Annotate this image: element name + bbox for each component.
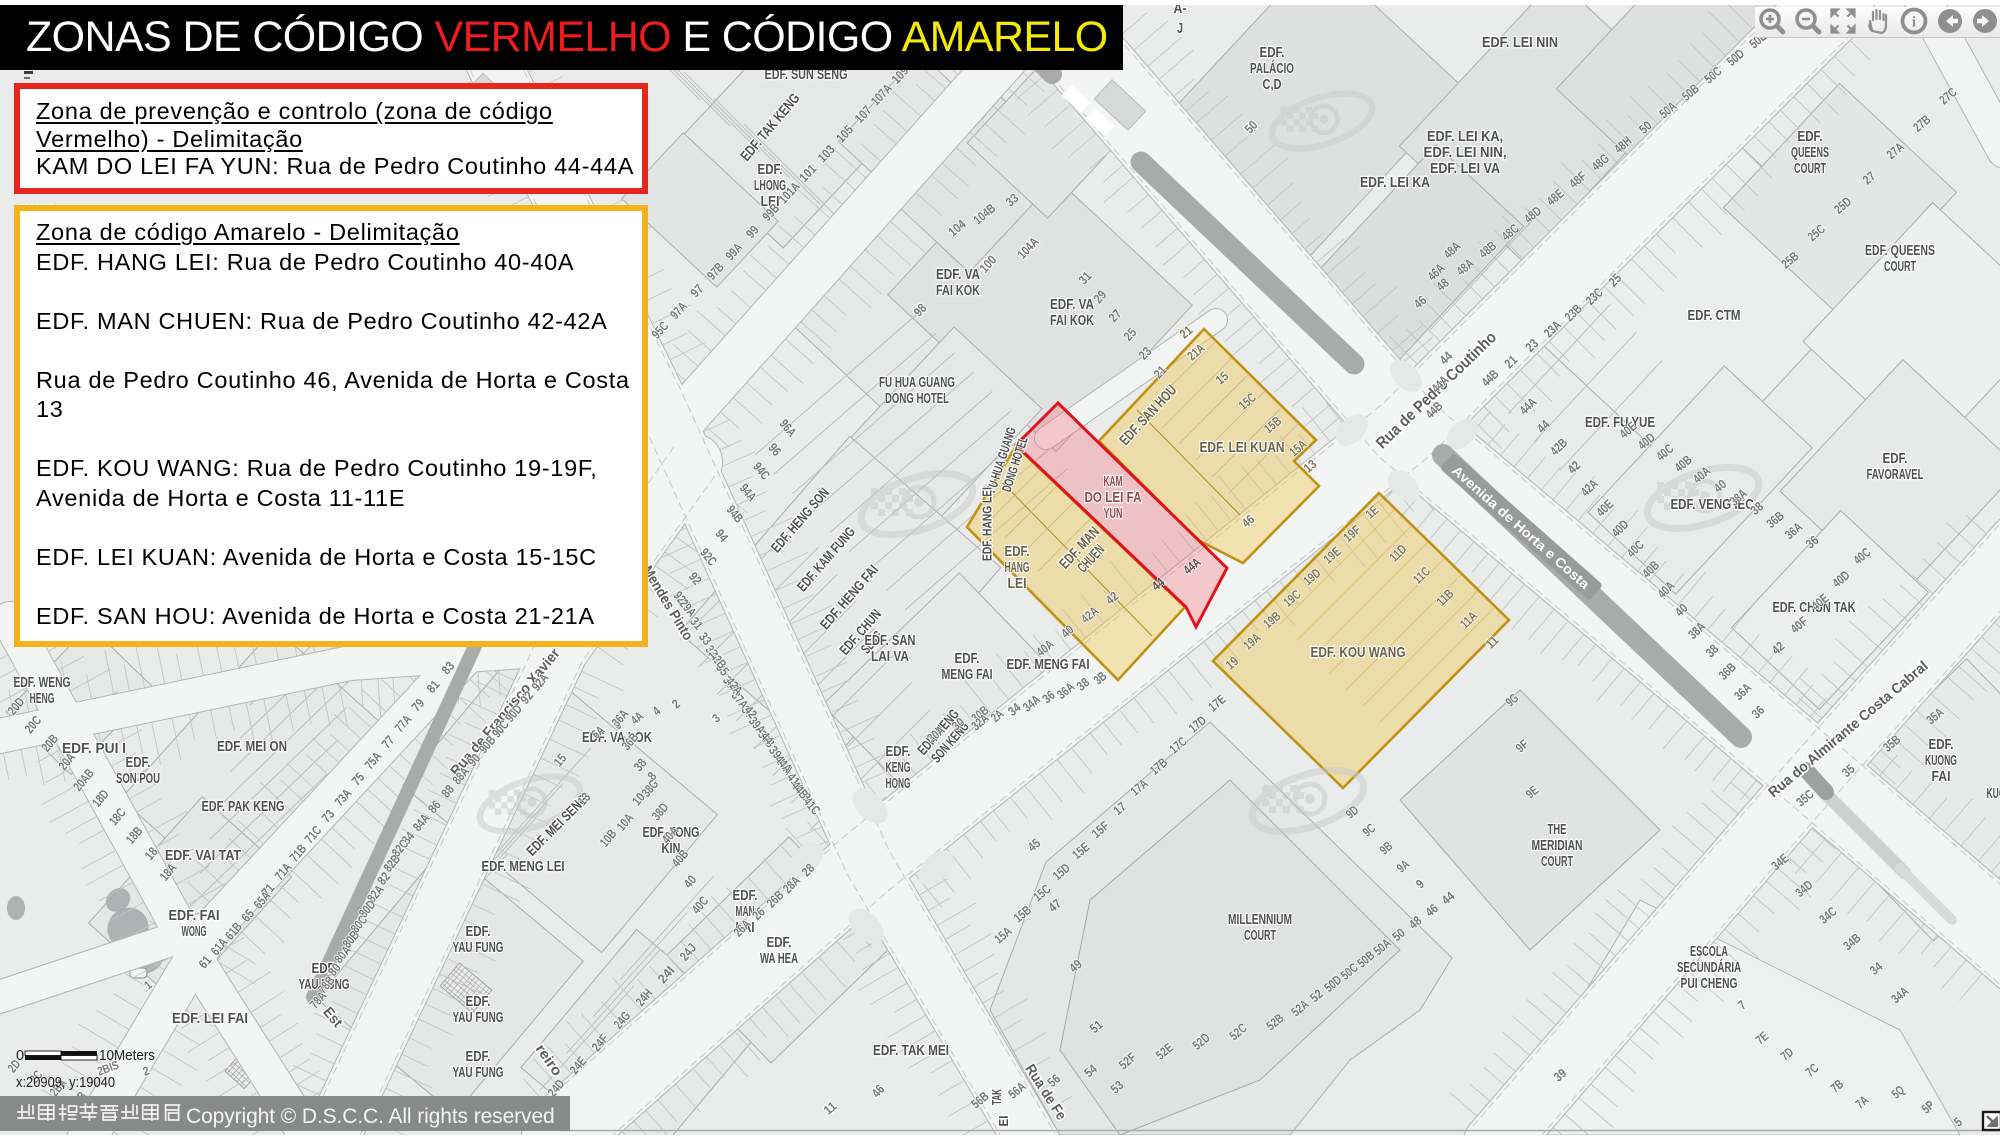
svg-text:10Meters: 10Meters [99,1048,155,1064]
svg-text:EDF.KENGHONG: EDF.KENGHONG [886,744,911,792]
svg-text:EDF. SANLAI VA: EDF. SANLAI VA [865,633,916,665]
svg-text:Copyright © D.S.C.C. All right: Copyright © D.S.C.C. All rights reserved [186,1105,555,1128]
svg-text:EDF.HANGLEI: EDF.HANGLEI [1005,544,1030,592]
svg-text:EDF. MENG LEI: EDF. MENG LEI [482,859,565,875]
svg-text:0: 0 [16,1048,24,1064]
svg-text:EDF. KOU WANG: EDF. KOU WANG [1311,644,1406,661]
svg-text:EDF. TAK MEI: EDF. TAK MEI [873,1043,949,1059]
svg-text:EDF. MEI ON: EDF. MEI ON [217,739,287,755]
svg-text:EDF. MENG FAI: EDF. MENG FAI [1007,657,1090,673]
svg-text:EDF. LEI FAI: EDF. LEI FAI [172,1011,248,1027]
svg-text:EDF. LEI KA: EDF. LEI KA [1360,175,1430,191]
svg-text:EDF. CTM: EDF. CTM [1688,307,1741,324]
svg-text:FU HUA GUANGDONG HOTEL: FU HUA GUANGDONG HOTEL [879,375,955,407]
svg-text:EDF. VAFAI KOK: EDF. VAFAI KOK [1050,297,1094,329]
svg-text:EDF. LEI KUAN: EDF. LEI KUAN [1200,439,1285,456]
svg-text:KUO: KUO [1987,786,2000,802]
svg-text:x:20909, y:19040: x:20909, y:19040 [16,1074,115,1091]
svg-text:EDF. HANG LEI: EDF. HANG LEI [979,487,994,561]
svg-text:i: i [1912,15,1916,31]
svg-text:TAK: TAK [990,1089,1004,1105]
svg-text:EDF. LEI KA,EDF. LEI NIN,EDF.: EDF. LEI KA,EDF. LEI NIN,EDF. LEI VA [1424,129,1507,177]
svg-text:EDF. VAFAI KOK: EDF. VAFAI KOK [936,267,980,299]
svg-text:EDF. PAK KENG: EDF. PAK KENG [202,799,285,815]
svg-text:EI: EI [997,1116,1011,1127]
svg-text:EDF. VAI TAT: EDF. VAI TAT [165,848,241,864]
